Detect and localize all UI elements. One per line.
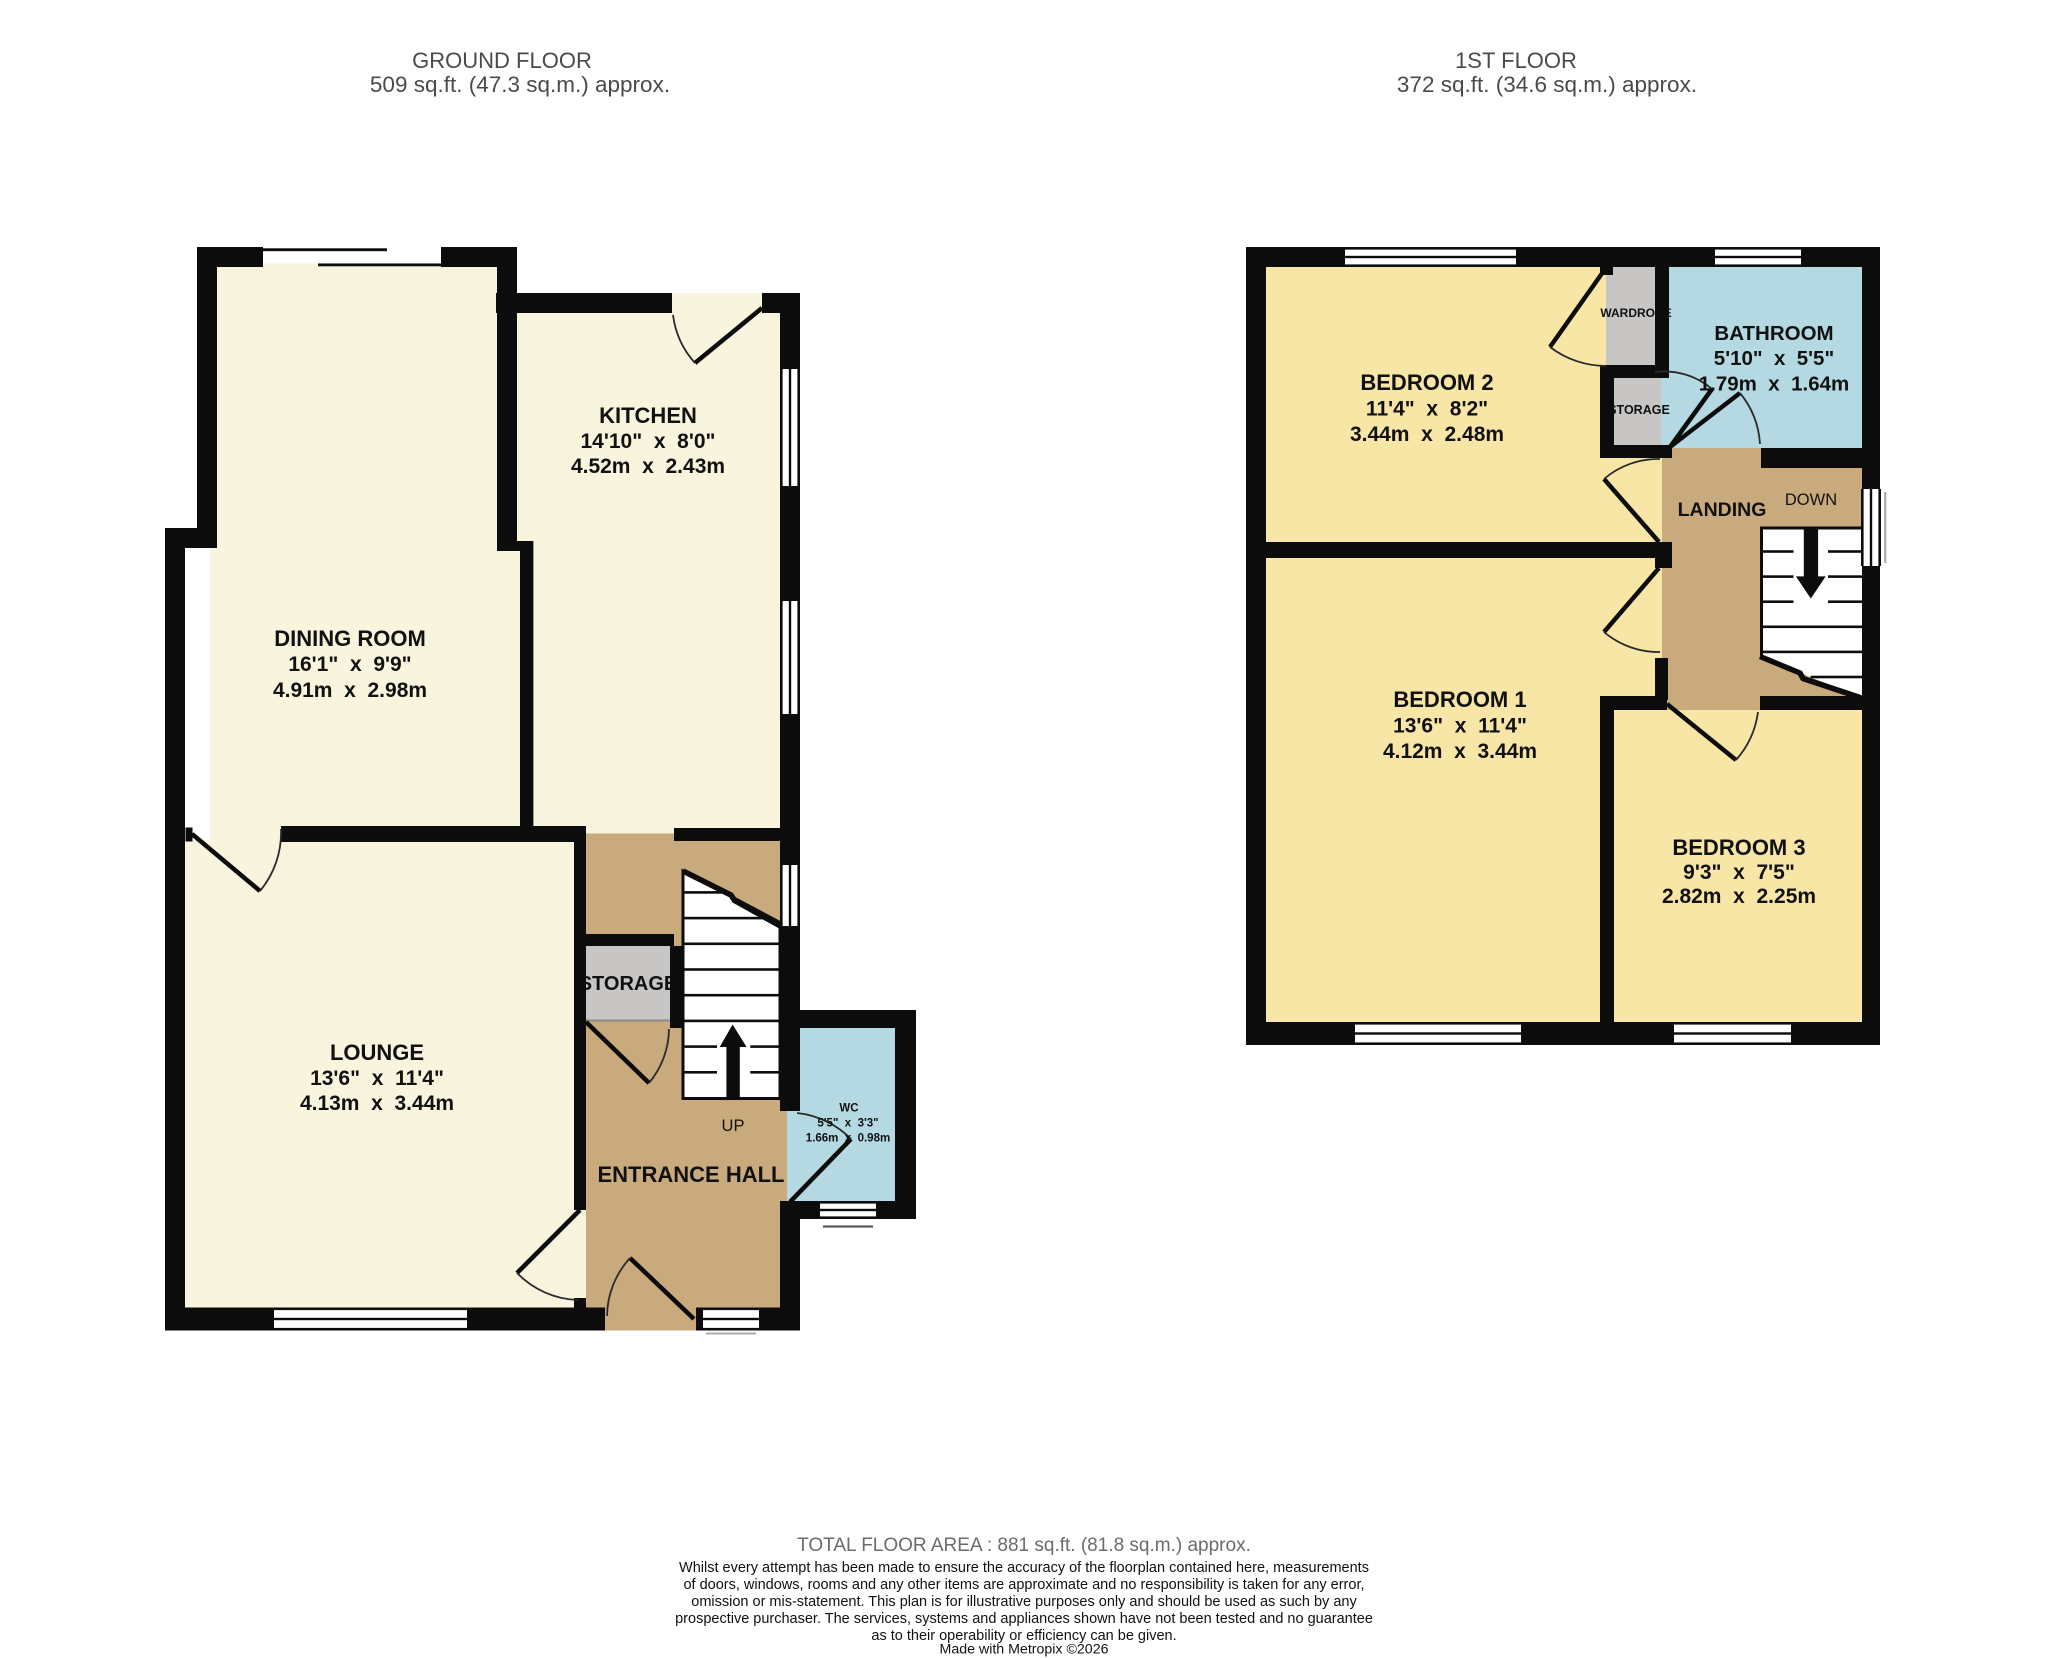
- svg-text:13'6" x 11'4": 13'6" x 11'4": [310, 1067, 444, 1090]
- svg-text:BEDROOM 3: BEDROOM 3: [1672, 835, 1805, 860]
- svg-text:5'5" x 3'3": 5'5" x 3'3": [817, 1118, 878, 1130]
- svg-text:WC: WC: [839, 1103, 858, 1115]
- svg-text:UP: UP: [722, 1117, 745, 1135]
- svg-text:BEDROOM 1: BEDROOM 1: [1393, 687, 1526, 712]
- svg-text:LOUNGE: LOUNGE: [330, 1040, 424, 1065]
- svg-text:KITCHEN: KITCHEN: [599, 403, 697, 428]
- svg-text:2.82m x 2.25m: 2.82m x 2.25m: [1662, 885, 1816, 908]
- svg-text:omission or mis-statement. Thi: omission or mis-statement. This plan is …: [691, 1594, 1357, 1610]
- svg-text:4.12m x 3.44m: 4.12m x 3.44m: [1383, 740, 1537, 763]
- svg-text:16'1" x 9'9": 16'1" x 9'9": [288, 653, 411, 676]
- svg-text:STORAGE: STORAGE: [579, 973, 678, 995]
- svg-text:9'3" x 7'5": 9'3" x 7'5": [1683, 861, 1795, 884]
- svg-text:Made with Metropix ©2026: Made with Metropix ©2026: [940, 1642, 1109, 1658]
- svg-text:1.79m x 1.64m: 1.79m x 1.64m: [1699, 373, 1849, 396]
- svg-text:BATHROOM: BATHROOM: [1714, 322, 1833, 345]
- svg-text:1ST FLOOR: 1ST FLOOR: [1455, 48, 1577, 73]
- svg-text:TOTAL FLOOR AREA : 881 sq.ft.: TOTAL FLOOR AREA : 881 sq.ft. (81.8 sq.m…: [797, 1535, 1251, 1556]
- svg-text:11'4" x 8'2": 11'4" x 8'2": [1366, 398, 1488, 421]
- svg-text:372 sq.ft. (34.6 sq.m.) approx: 372 sq.ft. (34.6 sq.m.) approx.: [1397, 72, 1697, 97]
- svg-text:BEDROOM 2: BEDROOM 2: [1360, 370, 1493, 395]
- svg-text:4.91m x 2.98m: 4.91m x 2.98m: [273, 679, 427, 702]
- svg-text:prospective purchaser. The ser: prospective purchaser. The services, sys…: [675, 1611, 1373, 1627]
- svg-text:4.13m x 3.44m: 4.13m x 3.44m: [300, 1092, 454, 1115]
- svg-text:ENTRANCE HALL: ENTRANCE HALL: [598, 1162, 785, 1187]
- svg-text:4.52m x 2.43m: 4.52m x 2.43m: [571, 455, 725, 478]
- svg-text:509 sq.ft. (47.3 sq.m.) approx: 509 sq.ft. (47.3 sq.m.) approx.: [370, 72, 670, 97]
- svg-text:GROUND FLOOR: GROUND FLOOR: [412, 48, 592, 73]
- svg-text:of doors, windows, rooms and a: of doors, windows, rooms and any other i…: [683, 1577, 1364, 1593]
- svg-text:DINING ROOM: DINING ROOM: [274, 626, 426, 651]
- svg-text:1.66m x 0.98m: 1.66m x 0.98m: [806, 1133, 890, 1145]
- svg-text:14'10" x 8'0": 14'10" x 8'0": [581, 430, 716, 453]
- svg-text:LANDING: LANDING: [1678, 499, 1767, 521]
- svg-text:STORAGE: STORAGE: [1608, 403, 1670, 417]
- svg-text:3.44m x 2.48m: 3.44m x 2.48m: [1350, 423, 1504, 446]
- svg-text:Whilst every attempt has been: Whilst every attempt has been made to en…: [679, 1560, 1369, 1576]
- svg-text:5'10" x 5'5": 5'10" x 5'5": [1714, 347, 1834, 370]
- svg-text:DOWN: DOWN: [1785, 491, 1837, 509]
- svg-text:13'6" x 11'4": 13'6" x 11'4": [1393, 715, 1527, 738]
